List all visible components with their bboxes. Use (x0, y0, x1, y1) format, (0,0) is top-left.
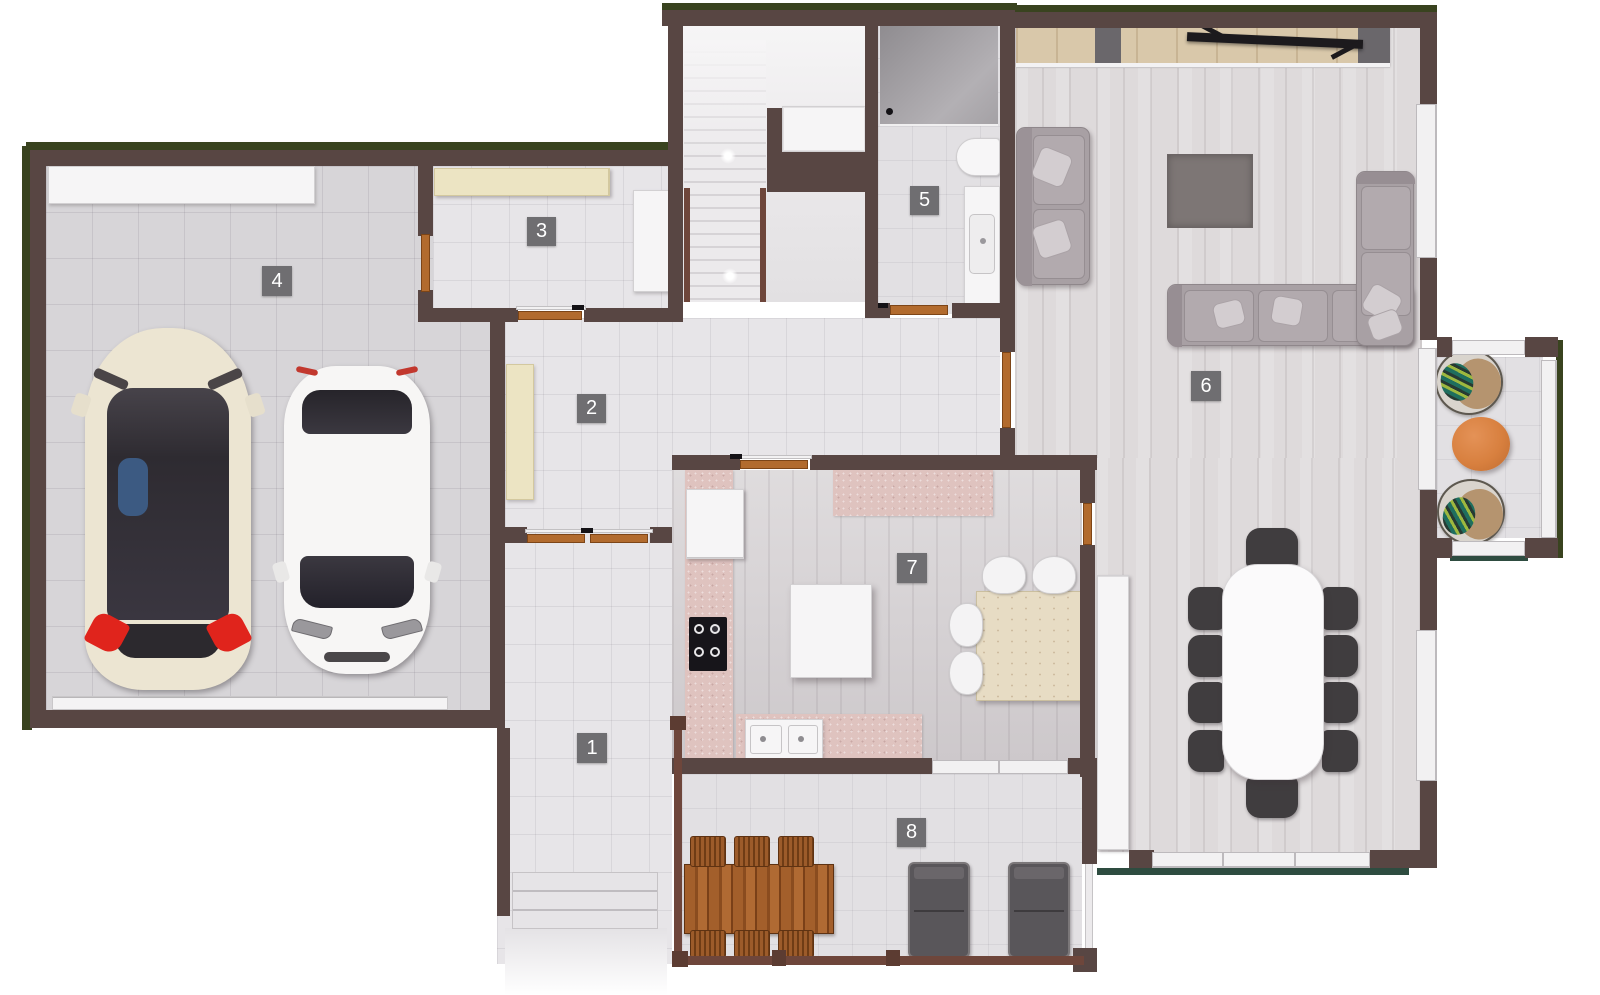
wall (584, 308, 672, 322)
kitchen-chair (949, 603, 983, 647)
door-garage-storage (421, 234, 430, 292)
toilet (956, 138, 1000, 176)
wall (782, 152, 878, 192)
car-white-grille (324, 652, 390, 662)
sectional-sofa-vertical (1356, 171, 1414, 346)
window-mullion (998, 760, 1000, 774)
wall (1437, 337, 1452, 357)
wall (1420, 258, 1437, 340)
ceiling-spotlight (722, 268, 738, 284)
wall (1437, 538, 1452, 558)
door-handle-mark (581, 528, 593, 533)
fridge (686, 489, 744, 559)
car-cream (85, 328, 251, 690)
terrace-glass-screen (1085, 862, 1093, 950)
door-bathroom (890, 305, 948, 315)
wall (1129, 850, 1154, 868)
wall (30, 150, 46, 728)
storage-cabinet-side (633, 190, 671, 292)
wall (497, 728, 510, 916)
wall (668, 10, 683, 322)
railing-post (772, 950, 786, 966)
burner (694, 624, 704, 634)
balcony-chair (1437, 479, 1505, 545)
sofa-seat (1361, 186, 1411, 250)
room-badge-5: 5 (910, 186, 939, 215)
wall (1068, 758, 1097, 774)
hallway-floor-east (672, 318, 1000, 458)
dining-table (1222, 564, 1324, 780)
sofa-armrest (1357, 172, 1415, 184)
shower (880, 26, 998, 126)
railing-post (672, 951, 688, 967)
window-mullion (1222, 852, 1224, 868)
grass-edge (1097, 868, 1409, 875)
entry-steps (512, 872, 658, 929)
bathroom-sink (969, 214, 995, 274)
door-kitchen-dining (1083, 503, 1092, 545)
dining-chair (1188, 635, 1224, 677)
burner (710, 647, 720, 657)
window (1452, 541, 1525, 556)
balcony-chair (1435, 349, 1503, 415)
room-badge-4: 4 (262, 266, 292, 296)
door-living-room (1002, 352, 1011, 428)
sofa-armrest (1168, 285, 1182, 347)
armchair-cushion-line (1014, 910, 1064, 912)
wall (30, 710, 505, 728)
bathroom-faucet (980, 238, 986, 244)
dining-chair (1188, 682, 1224, 723)
kitchen-chair (982, 556, 1026, 594)
room-badge-1: 1 (577, 733, 607, 763)
wall (1525, 337, 1558, 357)
wall (650, 527, 672, 543)
wall (1420, 490, 1437, 538)
railing-post (670, 716, 686, 730)
window-mullion (1294, 852, 1296, 868)
outdoor-chair (690, 836, 726, 867)
wall (672, 758, 932, 774)
stair-hall-cabinet (782, 106, 866, 152)
sliding-door-storage (518, 311, 582, 320)
breakfast-table (976, 591, 1082, 701)
dining-chair (1322, 635, 1358, 677)
car-cream-headlight-left (93, 367, 130, 391)
kitchen-chair (1032, 556, 1076, 594)
door-handle-mark (572, 305, 584, 310)
loveseat (1016, 127, 1090, 285)
stair-railing-right (760, 188, 766, 302)
dining-chair (1188, 730, 1224, 772)
outdoor-chair (778, 836, 814, 867)
car-white (284, 366, 430, 674)
wall (497, 527, 527, 543)
room-badge-2: 2 (577, 394, 606, 423)
wall (1082, 774, 1097, 864)
car-cream-headlight-right (207, 367, 244, 391)
car-cream-rear-window (115, 624, 221, 658)
sideboard-dark-module (1095, 25, 1121, 65)
sliding-door-kitchen (740, 460, 808, 469)
garage-shelf (48, 166, 315, 204)
dining-chair (1322, 682, 1358, 723)
window-band (1152, 852, 1370, 868)
outdoor-dining-table (684, 864, 834, 934)
window-band (932, 760, 1068, 774)
car-cream-driver (118, 458, 148, 516)
shower-head (886, 108, 893, 115)
ceiling-spotlight (720, 148, 736, 164)
outdoor-chair (690, 930, 726, 958)
wall (1420, 781, 1437, 868)
room-badge-7: 7 (897, 553, 927, 583)
room-badge-3: 3 (527, 217, 556, 246)
outdoor-armchair (908, 862, 970, 958)
armchair-back (1014, 867, 1064, 879)
window (1416, 104, 1437, 258)
burner (694, 647, 704, 657)
wall (30, 150, 672, 166)
terrace-railing-left (674, 720, 682, 960)
wall (490, 322, 505, 728)
dining-wall-cabinet (1097, 575, 1129, 850)
sink-basin (750, 725, 782, 754)
door-handle-mark (878, 303, 888, 308)
car-white-rear-window (302, 390, 412, 434)
dining-chair (1322, 730, 1358, 772)
garage-door (52, 696, 448, 710)
wall (1000, 24, 1015, 352)
loveseat-backrest (1017, 128, 1032, 286)
wall (1420, 12, 1437, 104)
outdoor-chair (734, 930, 770, 958)
window (1452, 340, 1525, 355)
balcony-sliding-door (1418, 348, 1437, 490)
armchair-back (914, 867, 964, 879)
sink-faucet (798, 736, 804, 742)
double-door-entry-hall (527, 534, 585, 543)
kitchen-counter-top (833, 470, 993, 516)
window (1541, 360, 1557, 538)
balcony-table (1452, 417, 1510, 471)
staircase-top-fade (684, 40, 766, 160)
dining-chair (1322, 587, 1358, 630)
kitchen-chair (949, 651, 983, 695)
grass-edge (1556, 340, 1563, 558)
wall (662, 10, 1015, 26)
burner (710, 624, 720, 634)
area-rug (1167, 154, 1253, 228)
room-badge-6: 6 (1191, 371, 1221, 401)
railing-post (886, 950, 900, 966)
car-white-windshield (300, 556, 414, 608)
floor-plan: 1 2 3 4 5 6 7 8 (0, 0, 1600, 995)
armchair-cushion-line (914, 910, 964, 912)
dining-chair (1246, 776, 1298, 818)
wall (1013, 12, 1437, 28)
car-white-headlight-left (291, 617, 333, 640)
window (1416, 630, 1437, 781)
wall (1420, 538, 1437, 630)
hallway-cabinet (506, 364, 534, 500)
outdoor-armchair (1008, 862, 1070, 958)
terrace-railing-bottom (674, 956, 1084, 965)
room-badge-8: 8 (897, 818, 926, 847)
grass-edge (1450, 556, 1528, 561)
door-track (738, 455, 812, 459)
wall (810, 455, 1097, 470)
sink-faucet (760, 736, 766, 742)
wall (1525, 538, 1558, 558)
kitchen-island (790, 584, 872, 678)
dining-chair (1188, 587, 1224, 630)
sideboard-front-edge (1016, 63, 1390, 68)
cooktop (689, 617, 727, 671)
double-door-entry-hall (590, 534, 648, 543)
storage-cabinet-top (434, 168, 610, 196)
kitchen-sink (745, 719, 823, 759)
car-white-headlight-right (381, 617, 423, 640)
outdoor-chair (734, 836, 770, 867)
wall (1080, 545, 1095, 777)
door-handle-mark (730, 454, 742, 459)
wall (418, 308, 518, 322)
sofa-pillow (1270, 295, 1304, 328)
stair-railing-left (684, 188, 690, 302)
wall (1080, 455, 1095, 503)
wall (767, 108, 782, 192)
entry-porch (505, 928, 667, 995)
wall (418, 166, 433, 236)
